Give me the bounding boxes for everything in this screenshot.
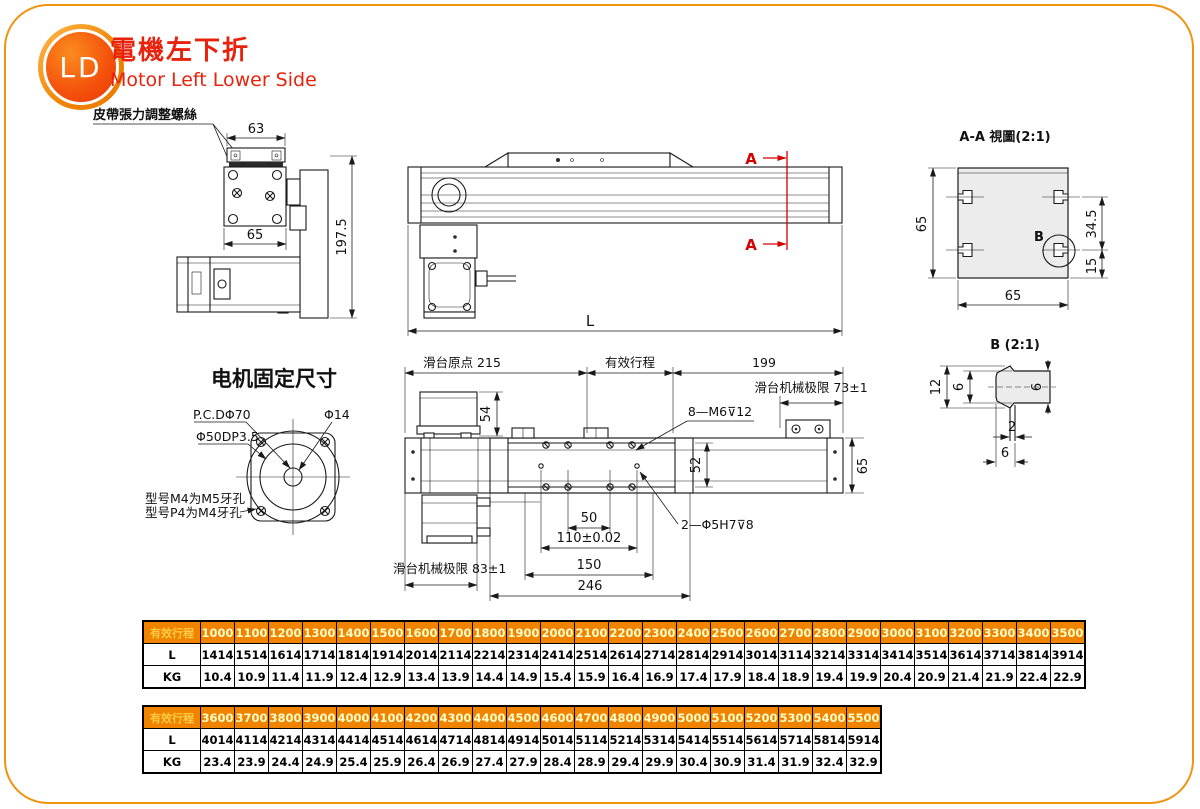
b-dim-12: 12 (929, 379, 944, 396)
dim-54: 54 (479, 406, 494, 423)
stroke-value-cell: 2900 (847, 621, 881, 644)
data-cell: 29.9 (643, 751, 677, 774)
row-label-cell: KG (143, 666, 201, 689)
data-cell: 29.4 (609, 751, 643, 774)
data-cell: 3914 (1051, 644, 1086, 666)
stroke-value-cell: 3800 (269, 706, 303, 729)
data-cell: 16.4 (609, 666, 643, 689)
data-cell: 1414 (201, 644, 235, 666)
data-cell: 5314 (643, 729, 677, 751)
data-cell: 19.9 (847, 666, 881, 689)
data-cell: 3214 (813, 644, 847, 666)
data-cell: 5614 (745, 729, 779, 751)
data-cell: 24.9 (303, 751, 337, 774)
stroke-value-cell: 3700 (235, 706, 269, 729)
data-cell: 11.9 (303, 666, 337, 689)
data-cell: 24.4 (269, 751, 303, 774)
data-cell: 20.4 (881, 666, 915, 689)
stroke-value-cell: 2300 (643, 621, 677, 644)
section-a-bottom: A (745, 236, 757, 254)
data-cell: 10.9 (235, 666, 269, 689)
stroke-value-cell: 2500 (711, 621, 745, 644)
stroke-value-cell: 4300 (439, 706, 473, 729)
data-cell: 1614 (269, 644, 303, 666)
data-cell: 25.4 (337, 751, 371, 774)
data-cell: 22.9 (1051, 666, 1086, 689)
data-cell: 18.4 (745, 666, 779, 689)
data-cell: 16.9 (643, 666, 677, 689)
stroke-value-cell: 2800 (813, 621, 847, 644)
data-cell: 4514 (371, 729, 405, 751)
stroke-header-cell: 有效行程 (143, 706, 201, 729)
data-cell: 21.4 (949, 666, 983, 689)
dim-110: 110±0.02 (557, 531, 622, 546)
data-cell: 5914 (847, 729, 882, 751)
data-cell: 32.4 (813, 751, 847, 774)
data-cell: 2214 (473, 644, 507, 666)
data-cell: 2014 (405, 644, 439, 666)
model-p4-note: 型号P4为M4牙孔 (145, 505, 242, 520)
stroke-value-cell: 1700 (439, 621, 473, 644)
b-view-title: B (2:1) (990, 338, 1040, 353)
stroke-label: 有效行程 (605, 355, 656, 370)
data-cell: 5014 (541, 729, 575, 751)
data-cell: 4414 (337, 729, 371, 751)
stroke-value-cell: 4600 (541, 706, 575, 729)
motor-mount-view: 电机固定尺寸 P.C.DΦ70 Φ14 Φ50DP3.5 型号M4为M5牙孔 (145, 367, 350, 535)
data-cell: 4114 (235, 729, 269, 751)
stroke-value-cell: 2000 (541, 621, 575, 644)
data-cell: 28.4 (541, 751, 575, 774)
data-cell: 1814 (337, 644, 371, 666)
data-cell: 27.9 (507, 751, 541, 774)
data-cell: 22.4 (1017, 666, 1051, 689)
dim-50: 50 (581, 511, 598, 526)
data-cell: 30.4 (677, 751, 711, 774)
data-cell: 25.9 (371, 751, 405, 774)
data-cell: 5814 (813, 729, 847, 751)
right-stop-block (786, 420, 830, 438)
b-dim-2: 2 (1008, 420, 1016, 435)
dim-65-plan: 65 (856, 458, 871, 475)
data-cell: 27.4 (473, 751, 507, 774)
data-cell: 5114 (575, 729, 609, 751)
stroke-value-cell: 4400 (473, 706, 507, 729)
side-view: L A A (408, 150, 842, 336)
data-cell: 3114 (779, 644, 813, 666)
data-cell: 15.9 (575, 666, 609, 689)
stroke-table-1: 有效行程100011001200130014001500160017001800… (142, 620, 1086, 689)
section-a-top: A (745, 150, 757, 168)
data-cell: 28.9 (575, 751, 609, 774)
data-cell: 4614 (405, 729, 439, 751)
aa-b-label: B (1034, 230, 1044, 245)
motor-side (177, 257, 300, 312)
data-cell: 2814 (677, 644, 711, 666)
data-cell: 19.4 (813, 666, 847, 689)
stroke-value-cell: 4900 (643, 706, 677, 729)
data-cell: 18.9 (779, 666, 813, 689)
stroke-value-cell: 1200 (269, 621, 303, 644)
stroke-value-cell: 3100 (915, 621, 949, 644)
data-cell: 5414 (677, 729, 711, 751)
stroke-value-cell: 1400 (337, 621, 371, 644)
b-dim-6-inner: 6 (952, 383, 967, 391)
row-label-cell: L (143, 729, 201, 751)
table-row: L401441144214431444144514461447144814491… (143, 729, 881, 751)
stroke-value-cell: 4200 (405, 706, 439, 729)
data-cell: 1514 (235, 644, 269, 666)
stroke-value-cell: 1500 (371, 621, 405, 644)
data-cell: 32.9 (847, 751, 882, 774)
aa-view-title: A-A 視圖(2:1) (959, 129, 1050, 145)
data-cell: 23.9 (235, 751, 269, 774)
stroke-value-cell: 3900 (303, 706, 337, 729)
stroke-value-cell: 5100 (711, 706, 745, 729)
stroke-value-cell: 5300 (779, 706, 813, 729)
model-m4-note: 型号M4为M5牙孔 (145, 491, 245, 506)
data-cell: 20.9 (915, 666, 949, 689)
origin-label: 滑台原点 215 (423, 355, 501, 370)
data-cell: 3714 (983, 644, 1017, 666)
stroke-table-2: 有效行程360037003800390040004100420043004400… (142, 705, 882, 774)
stroke-value-cell: 2700 (779, 621, 813, 644)
data-cell: 3814 (1017, 644, 1051, 666)
dim-52: 52 (689, 457, 704, 474)
data-cell: 12.9 (371, 666, 405, 689)
row-label-cell: KG (143, 751, 201, 774)
data-cell: 4714 (439, 729, 473, 751)
stroke-value-cell: 4800 (609, 706, 643, 729)
aa-dim-65-left: 65 (915, 216, 930, 233)
data-cell: 3414 (881, 644, 915, 666)
data-cell: 14.9 (507, 666, 541, 689)
data-cell: 2314 (507, 644, 541, 666)
data-cell: 13.4 (405, 666, 439, 689)
data-cell: 2514 (575, 644, 609, 666)
belt-tension-label: 皮帶張力調整螺絲 (92, 107, 197, 123)
data-cell: 2614 (609, 644, 643, 666)
data-cell: 3614 (949, 644, 983, 666)
aa-dim-15: 15 (1085, 258, 1100, 275)
stroke-header-cell: 有效行程 (143, 621, 201, 644)
stroke-value-cell: 4500 (507, 706, 541, 729)
data-cell: 21.9 (983, 666, 1017, 689)
stroke-value-cell: 1800 (473, 621, 507, 644)
pcd-label: P.C.DΦ70 (193, 407, 251, 422)
stroke-value-cell: 3500 (1051, 621, 1086, 644)
data-cell: 26.9 (439, 751, 473, 774)
data-cell: 4214 (269, 729, 303, 751)
stroke-value-cell: 1100 (235, 621, 269, 644)
data-cell: 4914 (507, 729, 541, 751)
data-cell: 26.4 (405, 751, 439, 774)
stroke-value-cell: 3000 (881, 621, 915, 644)
data-cell: 31.9 (779, 751, 813, 774)
aa-dim-65-bottom: 65 (1005, 289, 1022, 304)
motor-below (420, 225, 516, 318)
data-cell: 3514 (915, 644, 949, 666)
dim-246: 246 (578, 579, 603, 594)
stroke-value-cell: 2600 (745, 621, 779, 644)
data-cell: 1714 (303, 644, 337, 666)
screw-note: 8—M6⊽12 (688, 404, 752, 419)
data-cell: 2414 (541, 644, 575, 666)
aa-section-view: A-A 視圖(2:1) 65 65 34.5 15 (915, 129, 1108, 310)
data-cell: 2914 (711, 644, 745, 666)
motor-plan-below (422, 495, 540, 543)
pin-note: 2—Φ5H7⊽8 (681, 517, 754, 532)
plan-view: 滑台原点 215 有效行程 199 滑台机械极限 73±1 54 8—M6⊽12… (393, 355, 871, 601)
dim-63: 63 (248, 122, 265, 137)
stroke-value-cell: 2100 (575, 621, 609, 644)
phi50-label: Φ50DP3.5 (196, 429, 259, 444)
stroke-value-cell: 5200 (745, 706, 779, 729)
phi14-label: Φ14 (324, 407, 350, 422)
data-cell: 14.4 (473, 666, 507, 689)
data-cell: 10.4 (201, 666, 235, 689)
data-cell: 4814 (473, 729, 507, 751)
limit-left-label: 滑台机械极限 83±1 (393, 561, 506, 576)
stroke-value-cell: 3200 (949, 621, 983, 644)
table-row: L141415141614171418141914201421142214231… (143, 644, 1085, 666)
stroke-value-cell: 4700 (575, 706, 609, 729)
data-cell: 5714 (779, 729, 813, 751)
stroke-value-cell: 1900 (507, 621, 541, 644)
stroke-value-cell: 4000 (337, 706, 371, 729)
data-cell: 30.9 (711, 751, 745, 774)
stroke-value-cell: 1000 (201, 621, 235, 644)
stroke-value-cell: 3600 (201, 706, 235, 729)
b-dim-6-bottom: 6 (1001, 446, 1009, 461)
b-dim-6-right: 6 (1030, 383, 1045, 391)
stroke-value-cell: 5400 (813, 706, 847, 729)
data-cell: 17.9 (711, 666, 745, 689)
data-cell: 5214 (609, 729, 643, 751)
data-cell: 2714 (643, 644, 677, 666)
table-row: KG10.410.911.411.912.412.913.413.914.414… (143, 666, 1085, 689)
dim-197: 197.5 (335, 218, 350, 255)
motor-mount-title: 电机固定尺寸 (211, 367, 337, 391)
data-cell: 4014 (201, 729, 235, 751)
dim-65: 65 (247, 228, 264, 243)
stroke-value-cell: 1300 (303, 621, 337, 644)
data-cell: 1914 (371, 644, 405, 666)
stroke-value-cell: 4100 (371, 706, 405, 729)
data-cell: 15.4 (541, 666, 575, 689)
dim-199: 199 (752, 355, 776, 370)
data-cell: 11.4 (269, 666, 303, 689)
stroke-value-cell: 3400 (1017, 621, 1051, 644)
data-cell: 3014 (745, 644, 779, 666)
stroke-value-cell: 5000 (677, 706, 711, 729)
data-cell: 23.4 (201, 751, 235, 774)
stroke-value-cell: 2200 (609, 621, 643, 644)
row-label-cell: L (143, 644, 201, 666)
dim-L: L (586, 312, 595, 330)
limit-right-label: 滑台机械极限 73±1 (754, 380, 867, 395)
stroke-value-cell: 3300 (983, 621, 1017, 644)
data-cell: 12.4 (337, 666, 371, 689)
aa-dim-34: 34.5 (1085, 210, 1100, 239)
dim-150: 150 (577, 558, 602, 573)
stroke-value-cell: 2400 (677, 621, 711, 644)
data-cell: 3314 (847, 644, 881, 666)
stroke-value-cell: 1600 (405, 621, 439, 644)
drawing-page: LD 電機左下折 Motor Left Lower Side 皮帶張力調整螺絲 (0, 0, 1200, 809)
table-row: KG23.423.924.424.925.425.926.426.927.427… (143, 751, 881, 774)
data-cell: 4314 (303, 729, 337, 751)
data-cell: 31.4 (745, 751, 779, 774)
data-cell: 2114 (439, 644, 473, 666)
data-cell: 17.4 (677, 666, 711, 689)
b-detail-view: B (2:1) 12 6 6 2 6 (929, 338, 1056, 467)
stroke-value-cell: 5500 (847, 706, 882, 729)
data-cell: 13.9 (439, 666, 473, 689)
data-cell: 5514 (711, 729, 745, 751)
left-end-view: 皮帶張力調整螺絲 63 65 (92, 107, 357, 318)
